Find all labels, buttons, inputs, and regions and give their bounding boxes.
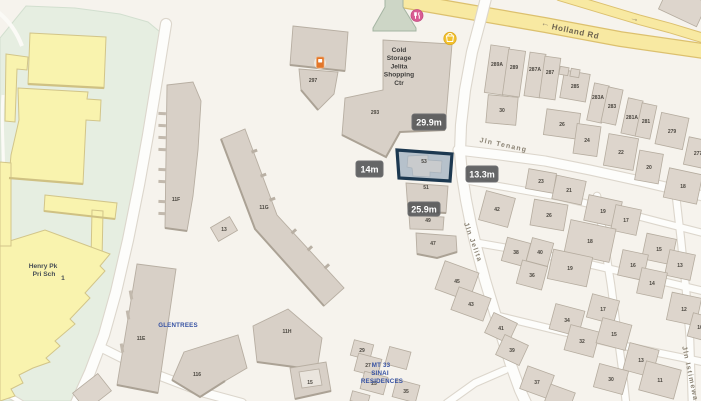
svg-text:RESIDENCES: RESIDENCES xyxy=(361,378,403,385)
svg-text:11F: 11F xyxy=(172,197,180,203)
svg-text:287: 287 xyxy=(546,70,555,76)
svg-text:51: 51 xyxy=(423,185,429,191)
svg-text:13: 13 xyxy=(638,358,644,364)
svg-text:283A: 283A xyxy=(592,95,604,101)
svg-text:22: 22 xyxy=(618,150,624,156)
svg-text:283: 283 xyxy=(608,104,617,110)
svg-text:SINAI: SINAI xyxy=(371,370,389,377)
svg-text:47: 47 xyxy=(430,241,436,247)
svg-text:36: 36 xyxy=(529,273,535,279)
svg-text:12: 12 xyxy=(681,307,687,313)
svg-text:18: 18 xyxy=(587,239,593,245)
svg-text:26: 26 xyxy=(546,213,552,219)
svg-text:Storage: Storage xyxy=(387,55,412,62)
svg-text:11E: 11E xyxy=(137,336,146,342)
svg-text:287A: 287A xyxy=(529,67,541,73)
svg-text:49: 49 xyxy=(425,218,431,224)
svg-text:11G: 11G xyxy=(259,205,268,211)
svg-text:42: 42 xyxy=(494,207,500,213)
svg-text:297: 297 xyxy=(309,78,318,84)
svg-text:23: 23 xyxy=(538,179,544,185)
svg-text:13: 13 xyxy=(677,263,683,269)
svg-text:116: 116 xyxy=(193,372,201,378)
svg-text:GLENTREES: GLENTREES xyxy=(158,322,198,329)
svg-text:285: 285 xyxy=(571,84,580,90)
svg-text:21: 21 xyxy=(566,188,572,194)
svg-text:13: 13 xyxy=(221,227,227,233)
svg-text:29: 29 xyxy=(359,348,365,354)
svg-text:Pri Sch: Pri Sch xyxy=(33,271,56,278)
svg-text:38: 38 xyxy=(513,250,519,256)
svg-text:26: 26 xyxy=(559,122,565,128)
svg-text:45: 45 xyxy=(454,279,460,285)
svg-text:30: 30 xyxy=(608,377,614,383)
svg-text:32: 32 xyxy=(579,339,585,345)
svg-text:16: 16 xyxy=(630,263,636,269)
svg-text:MT 33: MT 33 xyxy=(372,362,391,369)
svg-text:34: 34 xyxy=(564,318,570,324)
svg-text:15: 15 xyxy=(656,247,662,253)
svg-text:35: 35 xyxy=(403,389,409,395)
svg-text:Cold: Cold xyxy=(392,47,407,54)
svg-text:18: 18 xyxy=(680,184,686,190)
svg-text:277: 277 xyxy=(694,151,701,157)
svg-text:279: 279 xyxy=(668,129,677,135)
svg-text:1: 1 xyxy=(61,275,65,282)
svg-text:Henry Pk: Henry Pk xyxy=(29,263,58,270)
svg-text:43: 43 xyxy=(468,302,474,308)
svg-text:14: 14 xyxy=(649,281,655,287)
svg-text:20: 20 xyxy=(646,165,652,171)
svg-text:Ctr: Ctr xyxy=(394,80,404,87)
svg-text:30: 30 xyxy=(499,108,505,114)
svg-text:19: 19 xyxy=(600,209,606,215)
svg-text:11: 11 xyxy=(657,378,663,384)
svg-text:41: 41 xyxy=(498,326,504,332)
svg-text:29.9m: 29.9m xyxy=(416,117,442,127)
svg-text:14m: 14m xyxy=(360,164,378,174)
svg-text:289: 289 xyxy=(510,65,519,71)
svg-text:27: 27 xyxy=(365,363,371,369)
svg-text:Shopping: Shopping xyxy=(384,72,414,79)
svg-text:10: 10 xyxy=(697,325,701,331)
svg-text:17: 17 xyxy=(623,218,629,224)
svg-text:15: 15 xyxy=(611,332,617,338)
svg-text:17: 17 xyxy=(600,307,606,313)
svg-text:40: 40 xyxy=(537,250,543,256)
svg-text:53: 53 xyxy=(421,159,427,165)
svg-text:15: 15 xyxy=(307,380,313,386)
svg-text:37: 37 xyxy=(534,380,540,386)
svg-text:Jelita: Jelita xyxy=(391,63,408,70)
svg-text:13.3m: 13.3m xyxy=(469,169,495,179)
svg-text:24: 24 xyxy=(584,138,590,144)
svg-text:281: 281 xyxy=(642,119,651,125)
svg-text:39: 39 xyxy=(509,348,515,354)
svg-text:11H: 11H xyxy=(283,329,292,335)
svg-text:25.9m: 25.9m xyxy=(411,204,437,214)
svg-text:19: 19 xyxy=(567,266,573,272)
svg-text:281A: 281A xyxy=(626,115,638,121)
svg-text:293: 293 xyxy=(371,110,380,116)
svg-text:289A: 289A xyxy=(491,62,503,68)
